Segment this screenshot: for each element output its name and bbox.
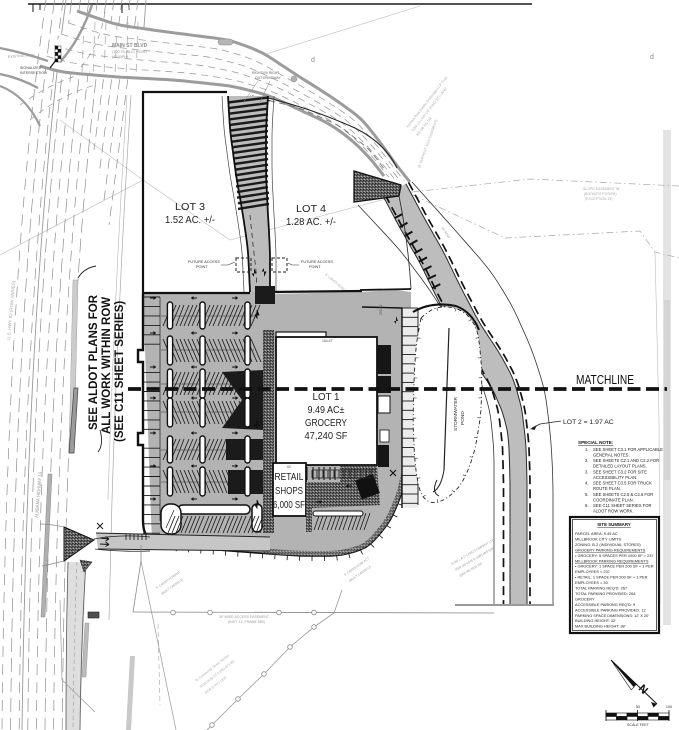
svg-text:d: d — [650, 54, 654, 61]
svg-text:GROCERY: GROCERY — [305, 418, 347, 429]
svg-text:DETAILED LAYOUT PLANS.: DETAILED LAYOUT PLANS. — [593, 464, 647, 469]
svg-text:SEE SHEET C3.5 FOR TRUCK: SEE SHEET C3.5 FOR TRUCK — [593, 481, 652, 486]
svg-text:6.: 6. — [585, 503, 589, 508]
svg-text:GENERAL NOTES.: GENERAL NOTES. — [593, 453, 630, 458]
svg-text:RETAIL: RETAIL — [275, 472, 304, 483]
svg-text:BUILDING HEIGHT: 32': BUILDING HEIGHT: 32' — [575, 618, 616, 623]
svg-text:LOT 1: LOT 1 — [313, 392, 340, 403]
svg-text:POINT: POINT — [196, 265, 208, 269]
svg-text:4.: 4. — [585, 481, 589, 486]
svg-text:184.67': 184.67' — [322, 339, 333, 343]
svg-text:d: d — [311, 57, 315, 64]
svg-text:(100' PUBLIC ROW): (100' PUBLIC ROW) — [112, 50, 147, 54]
svg-text:ALL WORK WITHIN ROW: ALL WORK WITHIN ROW — [101, 297, 113, 434]
svg-text:9.49 AC±: 9.49 AC± — [308, 405, 345, 416]
svg-text:SIGNALIZED: SIGNALIZED — [20, 66, 42, 70]
svg-text:50: 50 — [636, 705, 640, 709]
svg-text:6,000 SF: 6,000 SF — [273, 500, 305, 511]
svg-text:60': 60' — [287, 465, 292, 469]
svg-text:ACCESSIBILITY PLAN.: ACCESSIBILITY PLAN. — [593, 475, 637, 480]
svg-text:ZONING: B-2 (INDIVIDUAL STORES: ZONING: B-2 (INDIVIDUAL STORES) — [575, 542, 641, 547]
svg-text:SEE SHEETS C2.1 AND C2.2 FOR: SEE SHEETS C2.1 AND C2.2 FOR — [593, 458, 659, 463]
svg-text:LOT 4: LOT 4 — [296, 203, 326, 215]
svg-text:OUT DRIVEWAY: OUT DRIVEWAY — [255, 76, 281, 80]
svg-text:GROCERY: GROCERY — [575, 596, 595, 601]
svg-text:1.: 1. — [585, 447, 589, 452]
svg-text:SEE SHEETS C2.5 & C2.6 FOR: SEE SHEETS C2.5 & C2.6 FOR — [593, 492, 653, 497]
svg-text:ACCESSIBLE PARKING PROVIDED: 1: ACCESSIBLE PARKING PROVIDED: 12 — [575, 607, 646, 612]
svg-text:PARCEL AREA: 9.49 AC: PARCEL AREA: 9.49 AC — [575, 531, 618, 536]
svg-text:EMPLOYEES = 237: EMPLOYEES = 237 — [575, 569, 610, 574]
svg-text:SCALE FEET: SCALE FEET — [627, 723, 650, 727]
svg-text:SEE C11 SHEET SERIES FOR: SEE C11 SHEET SERIES FOR — [593, 503, 652, 508]
svg-text:INTERSECTION: INTERSECTION — [20, 71, 47, 75]
svg-text:30' WIDE ACCESS EASEMENT: 30' WIDE ACCESS EASEMENT — [219, 615, 270, 619]
svg-text:EMPLOYEES = 30: EMPLOYEES = 30 — [575, 580, 609, 585]
svg-text:COORDINATE PLAN.: COORDINATE PLAN. — [593, 497, 634, 502]
svg-text:(EXCEPTION 13): (EXCEPTION 13) — [585, 197, 612, 201]
svg-text:1.28 AC. +/-: 1.28 AC. +/- — [286, 216, 336, 228]
svg-text:LOT 2 = 1.97 AC: LOT 2 = 1.97 AC — [563, 419, 614, 426]
svg-text:SEE ALDOT PLANS FOR: SEE ALDOT PLANS FOR — [88, 294, 100, 430]
svg-text:PARKING SPACE DIMENSIONS: 12': PARKING SPACE DIMENSIONS: 12' X 20' — [575, 613, 649, 618]
svg-text:ALDOT ROW WORK.: ALDOT ROW WORK. — [593, 509, 634, 514]
svg-text:100: 100 — [666, 705, 672, 709]
svg-text:MAIN ST BLVD: MAIN ST BLVD — [112, 43, 148, 49]
svg-text:ROUTE PLAN.: ROUTE PLAN. — [593, 486, 621, 491]
svg-text:3.: 3. — [585, 469, 589, 474]
svg-text:TOTAL PARKING REQ'D: 267: TOTAL PARKING REQ'D: 267 — [575, 586, 627, 591]
svg-text:(SEE C11 SHEET SERIES): (SEE C11 SHEET SERIES) — [114, 301, 126, 442]
svg-text:POND: POND — [460, 411, 466, 425]
svg-text:• RETAIL: 1 SPACE PER 200 SF: • RETAIL: 1 SPACE PER 200 SF + 1 PER — [575, 575, 648, 580]
svg-text:SPECIAL NOTE:: SPECIAL NOTE: — [578, 440, 614, 445]
svg-text:FUTURE ACCESS: FUTURE ACCESS — [188, 260, 220, 264]
svg-text:GROCERY PARKING REQUIREMENTS: GROCERY PARKING REQUIREMENTS — [575, 547, 646, 552]
svg-text:• GROCERY: 1 SPACE PER 200 SF: • GROCERY: 1 SPACE PER 200 SF + 1 PER — [575, 564, 654, 569]
svg-text:SHOPS: SHOPS — [275, 486, 303, 497]
svg-text:5.: 5. — [585, 492, 589, 497]
svg-text:STORMWATER: STORMWATER — [453, 396, 459, 431]
svg-text:255.82: 255.82 — [379, 305, 383, 315]
svg-text:SEE SHEET C3.2 FOR SITE: SEE SHEET C3.2 FOR SITE — [593, 469, 647, 474]
svg-text:MILLBROOK PARKING REQUIREMENTS: MILLBROOK PARKING REQUIREMENTS — [575, 558, 649, 563]
svg-text:(BOOK/PG POS/PB): (BOOK/PG POS/PB) — [584, 192, 616, 196]
svg-text:MATCHLINE: MATCHLINE — [576, 373, 634, 387]
svg-text:(INST. 12, FRAME 589): (INST. 12, FRAME 589) — [228, 620, 265, 624]
svg-text:SLOPE EASEMENT IN: SLOPE EASEMENT IN — [583, 187, 620, 191]
svg-text:RIGHT IN/ RIGHT: RIGHT IN/ RIGHT — [252, 71, 279, 75]
svg-text:MAX BUILDING HEIGHT: 38': MAX BUILDING HEIGHT: 38' — [575, 624, 626, 629]
svg-text:2.: 2. — [585, 458, 589, 463]
svg-text:POINT: POINT — [309, 265, 321, 269]
svg-text:SITE SUMMARY: SITE SUMMARY — [597, 522, 631, 527]
svg-text:• GROCERY: 5 SPACES PER 1000: • GROCERY: 5 SPACES PER 1000 SF = 237 — [575, 553, 654, 558]
svg-text:ACCESSIBLE PARKING REQ'D: 9: ACCESSIBLE PARKING REQ'D: 9 — [575, 602, 635, 607]
svg-text:1.52 AC. +/-: 1.52 AC. +/- — [165, 214, 215, 226]
svg-text:(45 MPH): (45 MPH) — [112, 55, 129, 59]
svg-text:MILLBROOK CITY LIMITS: MILLBROOK CITY LIMITS — [575, 537, 622, 542]
svg-text:SEE SHEET C3.1 FOR APPLICABLE: SEE SHEET C3.1 FOR APPLICABLE — [593, 447, 663, 452]
svg-text:FUTURE ACCESS: FUTURE ACCESS — [301, 260, 333, 264]
svg-text:LOT 3: LOT 3 — [175, 201, 205, 213]
svg-text:TOTAL PARKING PROVIDED: 264: TOTAL PARKING PROVIDED: 264 — [575, 591, 636, 596]
svg-text:47,240 SF: 47,240 SF — [305, 431, 348, 442]
